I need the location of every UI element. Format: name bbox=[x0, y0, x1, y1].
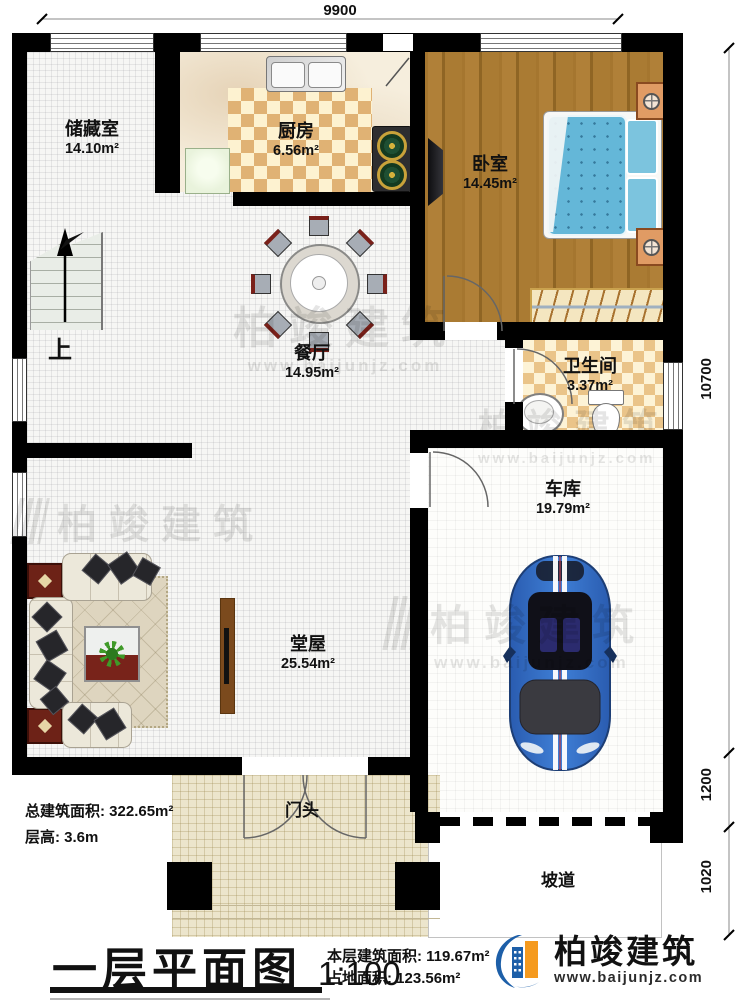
window-bedroom bbox=[480, 33, 622, 52]
wall-hall-garage-b bbox=[410, 508, 428, 812]
window-bathroom-right bbox=[663, 362, 683, 430]
kitchen-back-door-gap bbox=[383, 34, 413, 51]
label-garage: 车库 19.79m² bbox=[536, 478, 590, 518]
wall-bedroom-left bbox=[410, 33, 425, 340]
bed-pillow bbox=[626, 119, 658, 175]
wall-storage-kitchen bbox=[155, 33, 180, 193]
window-dining-left bbox=[12, 358, 27, 422]
dining-chair bbox=[251, 274, 271, 294]
bed-pillow bbox=[626, 177, 658, 233]
brand-logo-icon bbox=[492, 931, 546, 989]
floor-dining-extension bbox=[410, 340, 505, 430]
room-area: 6.56m² bbox=[273, 142, 319, 160]
label-hall: 堂屋 25.54m² bbox=[281, 633, 335, 673]
room-area: 14.10m² bbox=[65, 140, 119, 158]
dining-chair bbox=[309, 216, 329, 236]
room-name: 车库 bbox=[536, 478, 590, 500]
room-area: 3.37m² bbox=[563, 377, 617, 395]
room-area: 14.45m² bbox=[463, 175, 517, 193]
stairs-up-label: 上 bbox=[48, 330, 72, 365]
brand-logo-text: 柏竣建筑 www.baijunjz.com bbox=[554, 934, 703, 986]
stat-footprint: 占地面积: 123.56m² bbox=[327, 968, 490, 990]
room-name: 餐厅 bbox=[285, 342, 339, 364]
stat-floor-area: 本层建筑面积: 119.67m² bbox=[327, 946, 490, 968]
wall-bedroom-door-stub bbox=[425, 322, 445, 340]
room-name: 储藏室 bbox=[65, 118, 119, 140]
window-kitchen bbox=[200, 33, 347, 52]
label-kitchen: 厨房 6.56m² bbox=[273, 120, 319, 160]
stove-burner bbox=[377, 160, 407, 190]
sink-basin bbox=[308, 62, 342, 88]
nightstand-knob bbox=[643, 239, 660, 256]
brand-name: 柏竣建筑 bbox=[554, 934, 703, 970]
brand-site: www.baijunjz.com bbox=[554, 970, 703, 986]
window-hall-left bbox=[12, 472, 27, 537]
kitchen-stove bbox=[372, 126, 412, 192]
end-table bbox=[27, 563, 63, 599]
tv-panel bbox=[224, 628, 229, 684]
garage-door-post-right bbox=[650, 812, 683, 843]
nightstand-knob bbox=[643, 93, 660, 110]
dining-chair bbox=[367, 274, 387, 294]
porch-column-right bbox=[395, 862, 440, 910]
room-name: 厨房 bbox=[273, 120, 319, 142]
wall-dining-hall bbox=[12, 443, 192, 458]
wall-garage-top bbox=[410, 430, 663, 448]
floor-plan-canvas: 9900 10700 1200 1020 储藏室 14.10m² 厨房 6.56… bbox=[0, 0, 750, 1006]
end-table-decor bbox=[38, 574, 52, 588]
room-area: 25.54m² bbox=[281, 655, 335, 673]
garage-door-post-left bbox=[415, 812, 440, 843]
room-name: 堂屋 bbox=[281, 633, 335, 655]
dim-right-total: 10700 bbox=[698, 358, 715, 400]
wall-hall-bottom-left bbox=[12, 757, 242, 775]
label-dining: 餐厅 14.95m² bbox=[285, 342, 339, 382]
dim-top-label: 9900 bbox=[300, 2, 380, 19]
bathroom-sink bbox=[516, 393, 564, 435]
porch-step-line bbox=[172, 918, 440, 919]
dining-table-hub bbox=[312, 276, 326, 290]
stove-burner bbox=[377, 131, 407, 161]
plant bbox=[99, 641, 125, 667]
end-table-decor bbox=[38, 719, 52, 733]
label-bathroom: 卫生间 3.37m² bbox=[563, 355, 617, 395]
porch-column-left bbox=[167, 862, 212, 910]
car bbox=[502, 552, 618, 774]
floor-stats: 本层建筑面积: 119.67m² 占地面积: 123.56m² bbox=[327, 946, 490, 990]
sink-basin bbox=[271, 62, 305, 88]
room-area: 19.79m² bbox=[536, 500, 590, 518]
dim-right-ramp: 1020 bbox=[698, 860, 715, 893]
garage-door-dashed bbox=[440, 817, 650, 826]
label-bedroom: 卧室 14.45m² bbox=[463, 153, 517, 193]
room-name: 门头 bbox=[285, 796, 319, 821]
brand-logo: 柏竣建筑 www.baijunjz.com bbox=[492, 931, 703, 989]
title-underline-thin bbox=[50, 998, 330, 1000]
wall-right bbox=[663, 33, 683, 843]
label-storage: 储藏室 14.10m² bbox=[65, 118, 119, 158]
label-ramp: 坡道 bbox=[541, 866, 575, 891]
note-total-area: 总建筑面积: 322.65m² bbox=[25, 800, 173, 821]
wall-hall-garage-a bbox=[410, 448, 428, 453]
room-name: 卧室 bbox=[463, 153, 517, 175]
end-table bbox=[27, 708, 63, 744]
title-underline bbox=[50, 987, 322, 993]
coffee-table bbox=[84, 626, 140, 682]
kitchen-sink bbox=[266, 56, 346, 92]
wardrobe bbox=[530, 288, 666, 326]
wall-bathroom-left-top bbox=[505, 340, 523, 348]
room-name: 坡道 bbox=[541, 866, 575, 891]
note-floor-height: 层高: 3.6m bbox=[25, 826, 98, 847]
room-name: 卫生间 bbox=[563, 355, 617, 377]
kitchen-fridge bbox=[185, 148, 230, 194]
bathroom-sink-bowl bbox=[524, 400, 554, 424]
wall-kitchen-bottom bbox=[233, 192, 410, 206]
room-area: 14.95m² bbox=[285, 364, 339, 382]
wall-bedroom-bottom bbox=[497, 322, 663, 340]
window-storage bbox=[50, 33, 154, 52]
label-porch: 门头 bbox=[285, 796, 319, 821]
dim-right-garage-front: 1200 bbox=[698, 768, 715, 801]
